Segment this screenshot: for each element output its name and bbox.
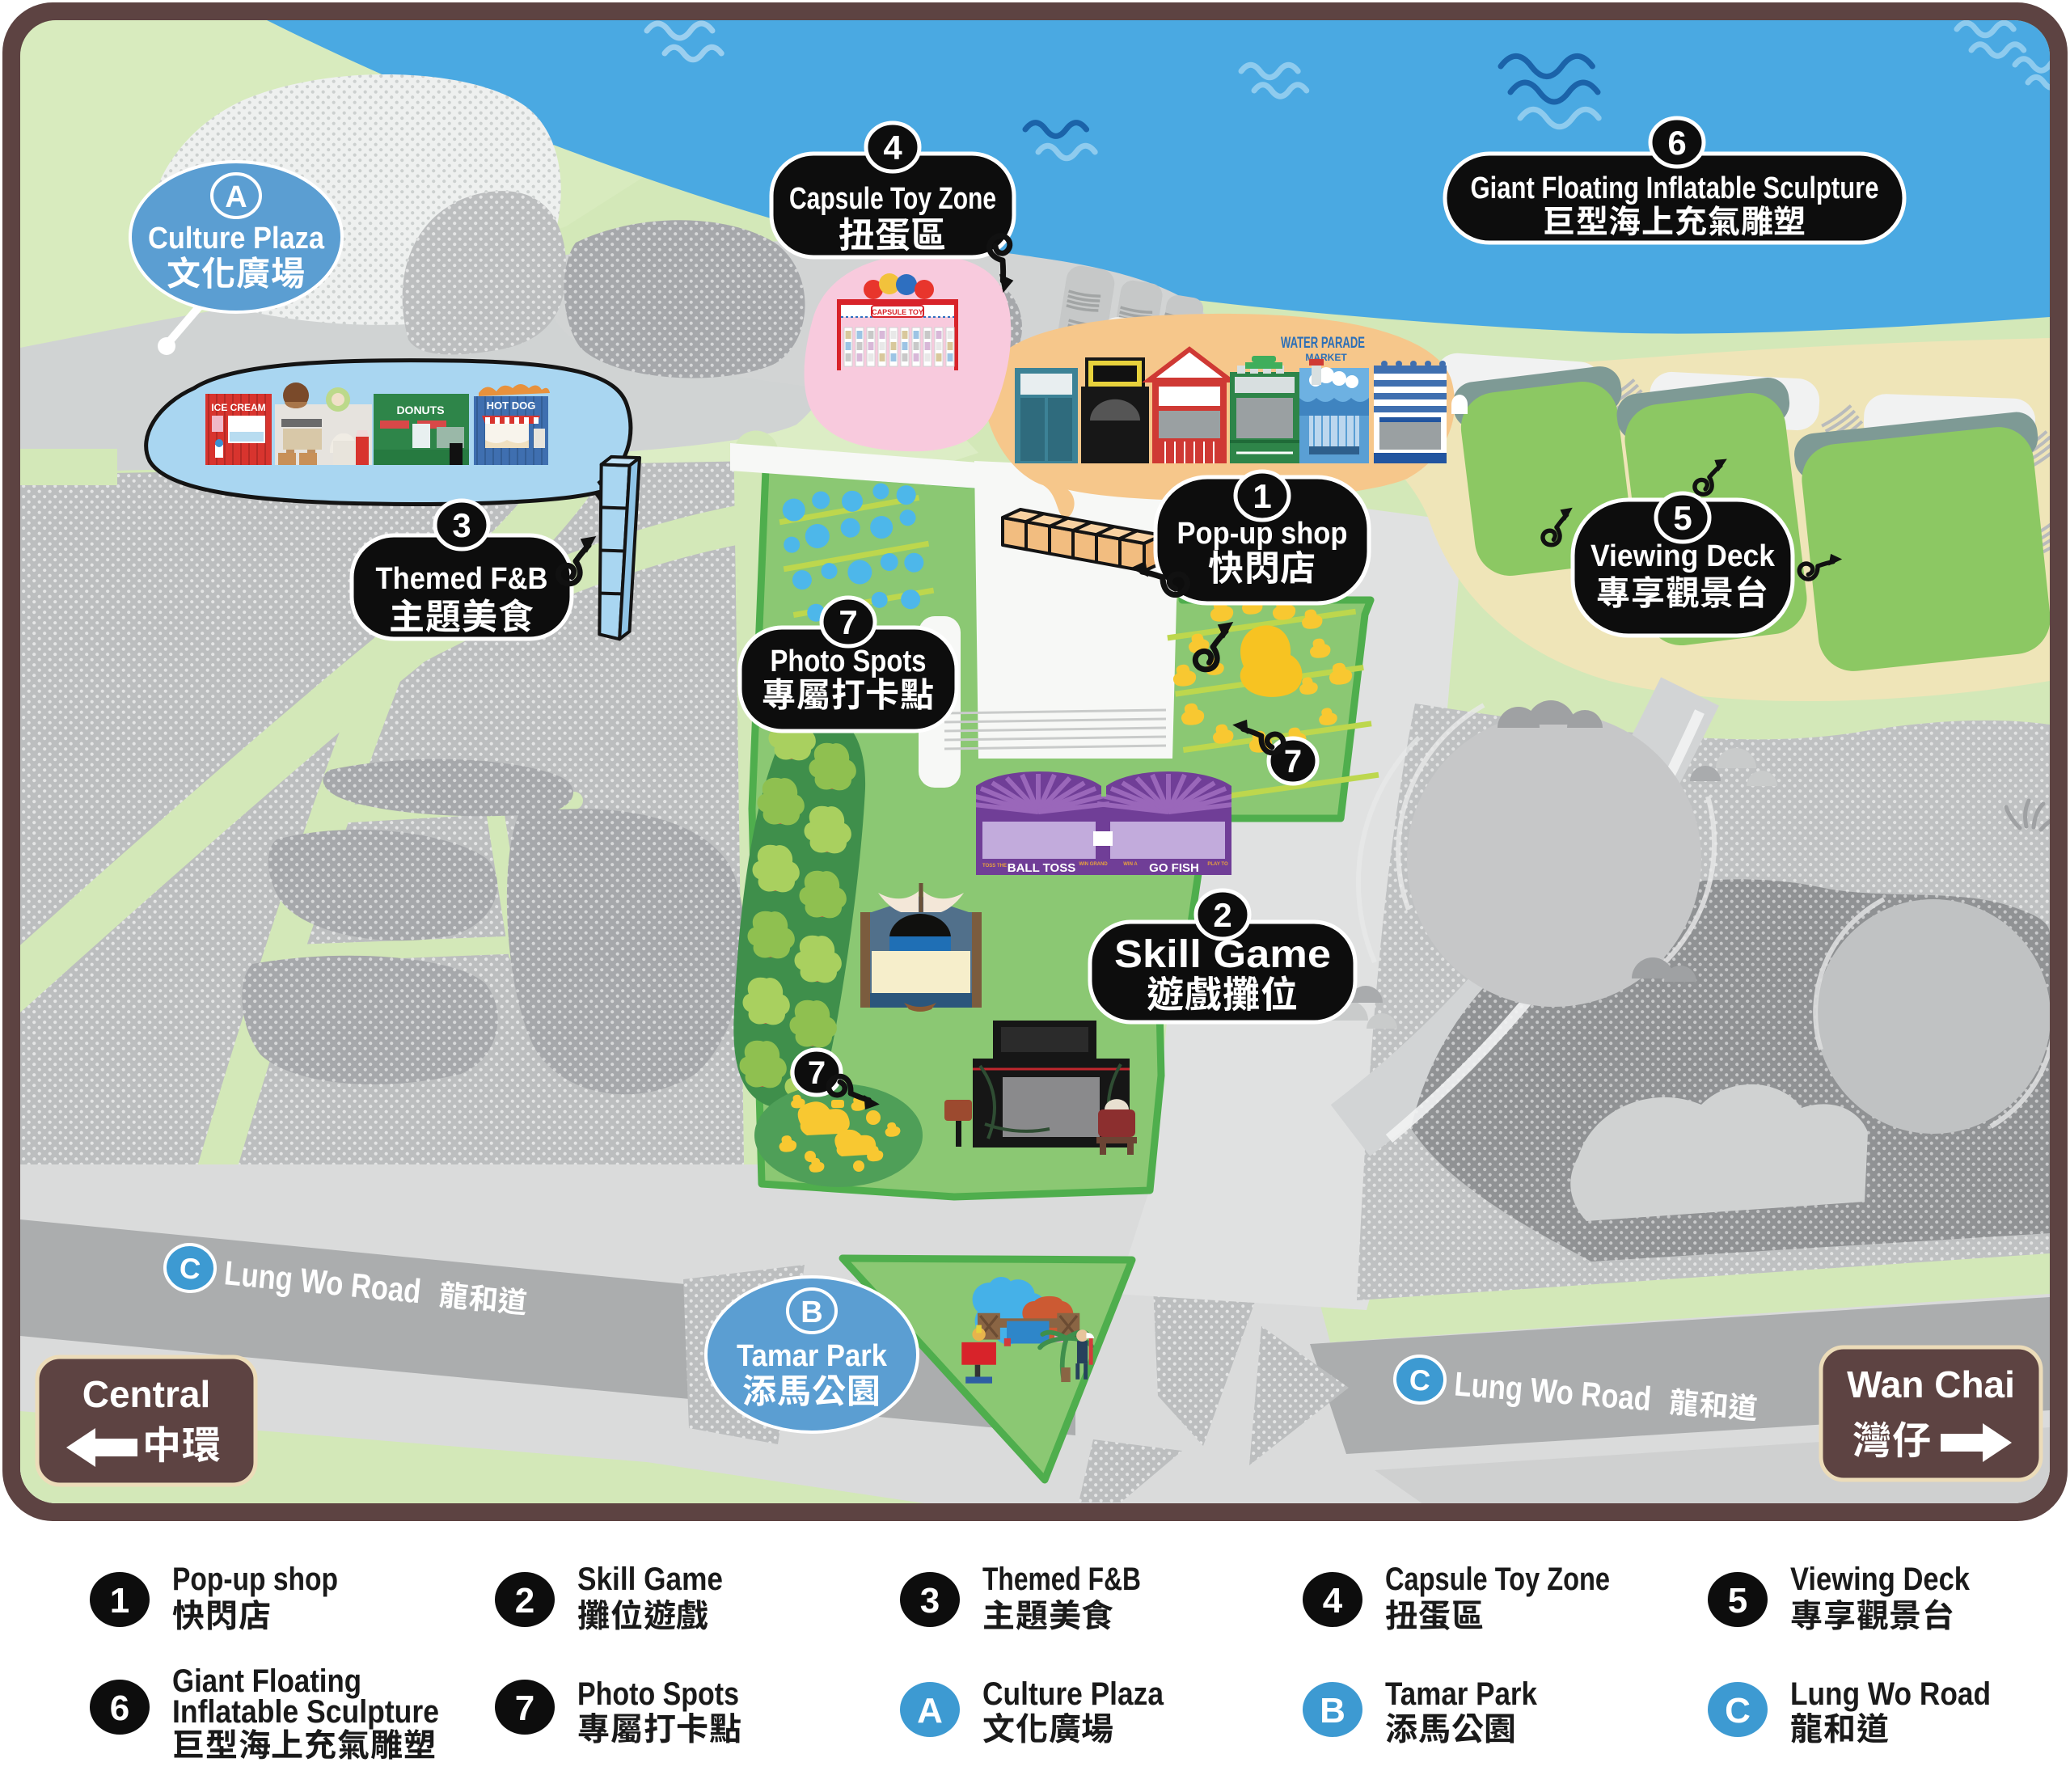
svg-text:1: 1 (1253, 477, 1271, 515)
svg-text:Photo Spots: Photo Spots (577, 1676, 739, 1712)
svg-text:Culture Plaza: Culture Plaza (982, 1676, 1164, 1712)
svg-text:Pop-up shop: Pop-up shop (172, 1562, 338, 1597)
svg-text:3: 3 (920, 1581, 940, 1621)
svg-text:DONUTS: DONUTS (396, 404, 444, 416)
svg-text:Viewing Deck: Viewing Deck (1591, 539, 1776, 573)
svg-text:2: 2 (1213, 896, 1231, 934)
svg-text:CAPSULE TOY: CAPSULE TOY (872, 308, 923, 316)
svg-text:3: 3 (452, 506, 471, 544)
svg-text:4: 4 (1323, 1581, 1343, 1621)
svg-text:A: A (225, 180, 247, 214)
svg-text:6: 6 (110, 1688, 129, 1728)
svg-text:Central: Central (82, 1373, 210, 1415)
svg-text:7: 7 (1284, 744, 1302, 780)
svg-text:Capsule Toy Zone: Capsule Toy Zone (789, 182, 996, 216)
svg-text:WIN A: WIN A (1123, 862, 1138, 867)
svg-text:2: 2 (515, 1581, 534, 1621)
svg-text:BALL TOSS: BALL TOSS (1008, 861, 1075, 875)
svg-text:7: 7 (808, 1055, 826, 1091)
svg-text:Tamar Park: Tamar Park (1385, 1676, 1538, 1712)
svg-text:Photo Spots: Photo Spots (771, 645, 927, 678)
svg-text:TOSS THE: TOSS THE (982, 864, 1007, 869)
svg-text:C: C (178, 1251, 202, 1286)
svg-text:Themed F&B: Themed F&B (376, 562, 548, 596)
svg-text:WIN GRAND: WIN GRAND (1079, 862, 1108, 867)
svg-text:5: 5 (1673, 499, 1692, 537)
svg-text:7: 7 (515, 1688, 534, 1728)
svg-text:Tamar Park: Tamar Park (737, 1339, 888, 1373)
svg-text:Culture Plaza: Culture Plaza (148, 222, 325, 256)
svg-text:Lung Wo Road: Lung Wo Road (1790, 1676, 1991, 1712)
svg-text:B: B (1320, 1691, 1345, 1731)
svg-text:Inflatable Sculpture: Inflatable Sculpture (172, 1694, 439, 1730)
svg-text:C: C (1725, 1691, 1751, 1731)
svg-text:HOT DOG: HOT DOG (487, 399, 536, 412)
svg-text:WATER PARADE: WATER PARADE (1281, 335, 1365, 352)
svg-text:A: A (917, 1691, 943, 1731)
svg-text:Skill Game: Skill Game (577, 1562, 723, 1597)
svg-text:5: 5 (1728, 1581, 1747, 1621)
svg-text:Skill Game: Skill Game (1114, 933, 1331, 976)
svg-text:Giant Floating Inflatable Scul: Giant Floating Inflatable Sculpture (1471, 171, 1879, 205)
svg-text:Wan Chai: Wan Chai (1847, 1363, 2015, 1405)
svg-text:7: 7 (839, 603, 857, 641)
svg-text:B: B (801, 1295, 822, 1329)
svg-text:Themed F&B: Themed F&B (982, 1562, 1141, 1597)
svg-text:1: 1 (110, 1581, 129, 1621)
svg-text:PLAY TO: PLAY TO (1207, 862, 1228, 867)
svg-text:C: C (1408, 1363, 1431, 1397)
svg-text:ICE CREAM: ICE CREAM (211, 402, 265, 413)
svg-text:Pop-up shop: Pop-up shop (1177, 517, 1348, 551)
svg-text:6: 6 (1667, 124, 1686, 162)
svg-text:Viewing Deck: Viewing Deck (1790, 1562, 1971, 1597)
svg-text:Capsule Toy Zone: Capsule Toy Zone (1385, 1562, 1610, 1597)
svg-text:GO FISH: GO FISH (1149, 861, 1199, 875)
svg-text:4: 4 (883, 129, 902, 167)
